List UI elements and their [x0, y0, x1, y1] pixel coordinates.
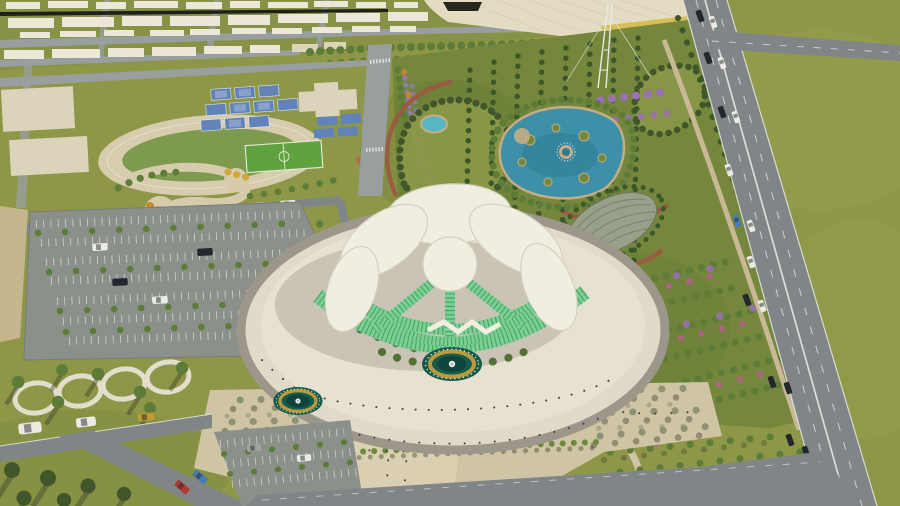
garden-pool — [421, 116, 447, 133]
hall-entrance — [443, 2, 482, 11]
secondary-fountain — [273, 387, 322, 415]
park-masterplan-render — [0, 0, 900, 506]
main-fountain — [422, 347, 482, 381]
mini-soccer-pitch — [245, 140, 323, 172]
building-pad — [9, 136, 89, 176]
lagoon-pond — [500, 107, 624, 198]
aerial-render-screenshot — [0, 0, 900, 506]
city-buildings-row1 — [6, 1, 418, 9]
building-pad — [1, 86, 75, 132]
